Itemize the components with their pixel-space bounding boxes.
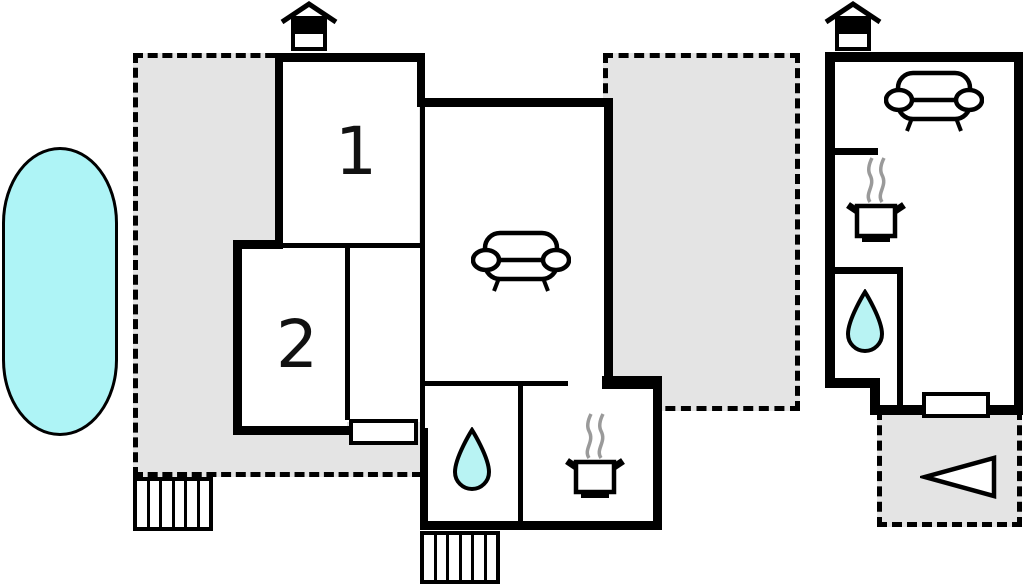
steam-icon <box>863 156 893 204</box>
room-2-label: 2 <box>247 312 347 378</box>
sofa-icon <box>471 230 571 292</box>
interior-wall <box>897 267 903 405</box>
window-marker <box>922 392 990 418</box>
wall <box>825 52 1023 62</box>
water-drop-icon <box>843 289 887 353</box>
wall <box>233 240 242 435</box>
wall <box>653 380 662 530</box>
stove-pot-icon <box>562 454 628 500</box>
interior-wall <box>283 243 420 248</box>
swimming-pool <box>2 147 118 436</box>
wall <box>417 98 613 107</box>
stairs-icon <box>133 477 213 531</box>
window-marker <box>349 419 418 445</box>
wall <box>233 426 350 435</box>
sofa-icon <box>884 70 984 132</box>
stairs-icon <box>420 531 500 584</box>
interior-wall <box>420 381 568 386</box>
wall <box>604 98 613 385</box>
floor-plan: 1 2 <box>0 0 1024 586</box>
chimney-icon <box>823 1 883 51</box>
wall <box>825 52 835 388</box>
terrace-middle <box>603 53 800 411</box>
interior-wall <box>835 148 878 155</box>
chimney-icon <box>279 1 339 51</box>
room-1-label: 1 <box>306 119 406 185</box>
wall <box>420 521 662 530</box>
interior-wall <box>518 386 523 522</box>
steam-icon <box>582 412 612 460</box>
arrow-left-icon <box>920 453 998 501</box>
wall <box>1014 52 1023 415</box>
stove-pot-icon <box>843 198 909 244</box>
wall <box>275 53 423 62</box>
interior-wall <box>420 98 425 445</box>
wall <box>417 53 425 103</box>
interior-wall <box>830 267 903 274</box>
water-drop-icon <box>450 427 494 491</box>
wall <box>275 53 283 248</box>
hallway-floor <box>347 246 422 422</box>
